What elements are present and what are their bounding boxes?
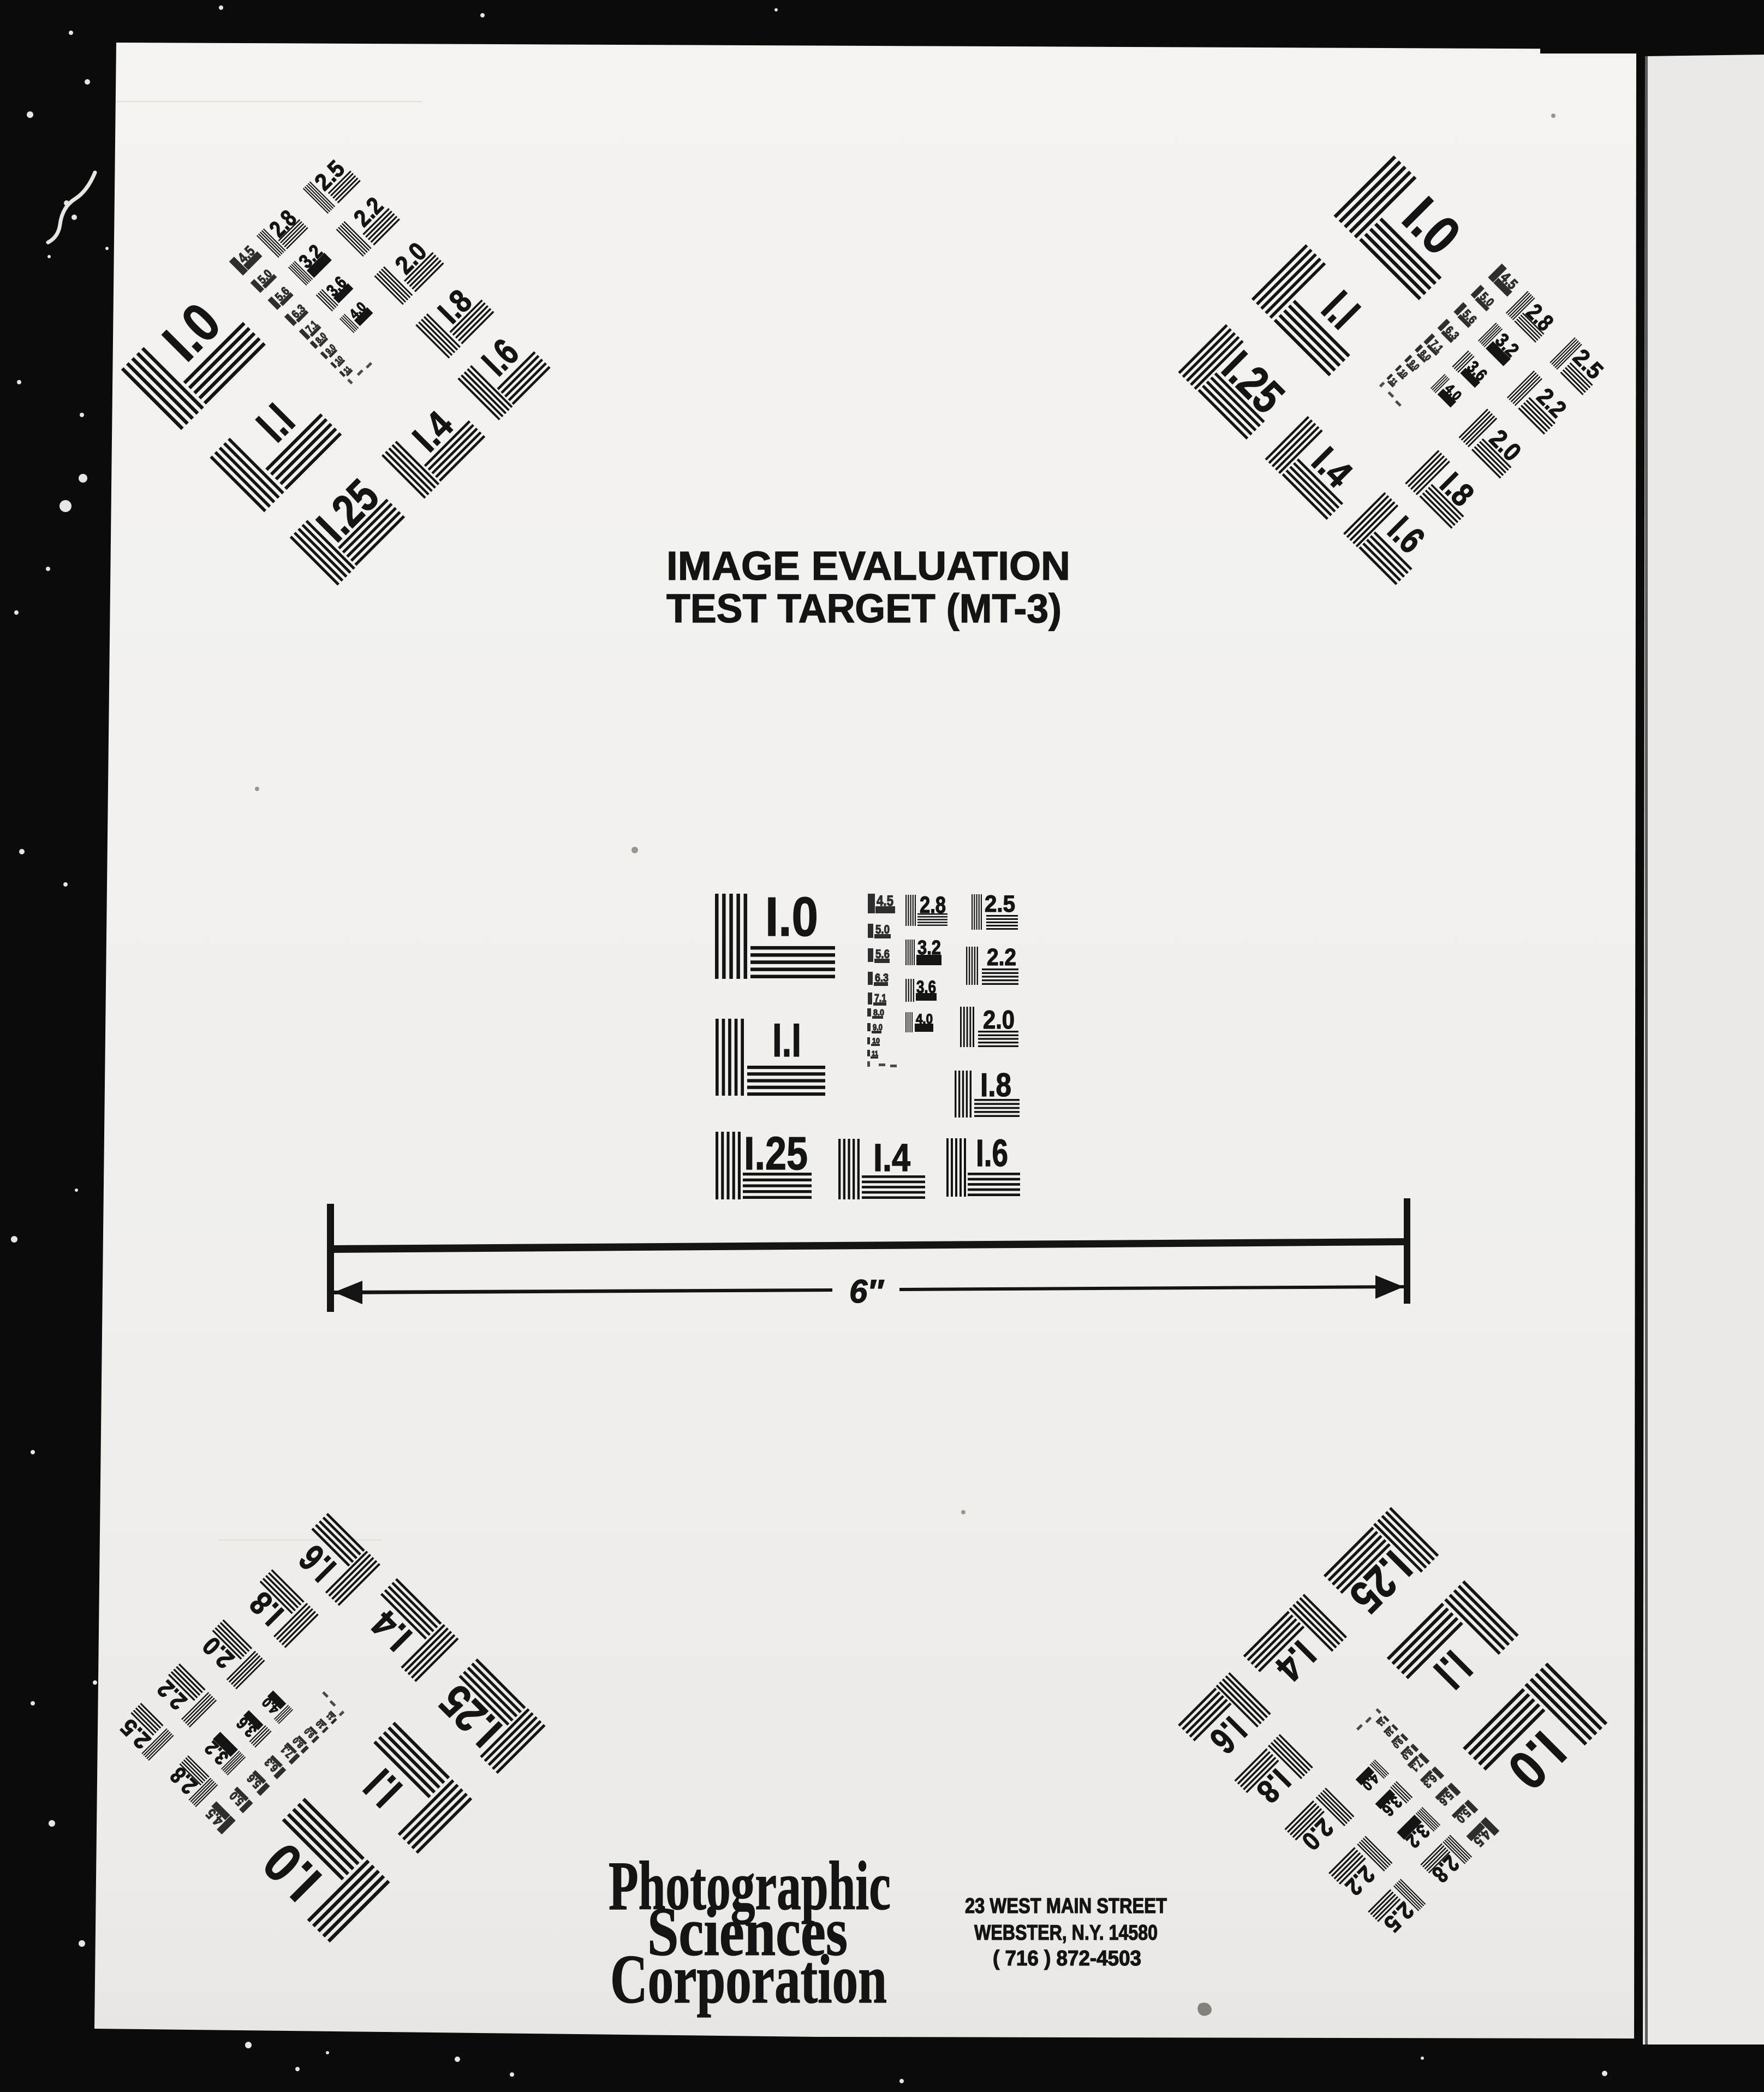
svg-text:Corporation: Corporation [610, 1941, 887, 2018]
svg-text:23 WEST MAIN STREET: 23 WEST MAIN STREET [965, 1894, 1167, 1918]
svg-text:TEST TARGET (MT-3): TEST TARGET (MT-3) [666, 586, 1062, 631]
svg-text:IMAGE EVALUATION: IMAGE EVALUATION [666, 543, 1070, 589]
svg-text:( 716 ) 872-4503: ( 716 ) 872-4503 [993, 1947, 1141, 1970]
svg-text:6″: 6″ [849, 1273, 884, 1310]
svg-text:WEBSTER, N.Y. 14580: WEBSTER, N.Y. 14580 [974, 1921, 1158, 1945]
